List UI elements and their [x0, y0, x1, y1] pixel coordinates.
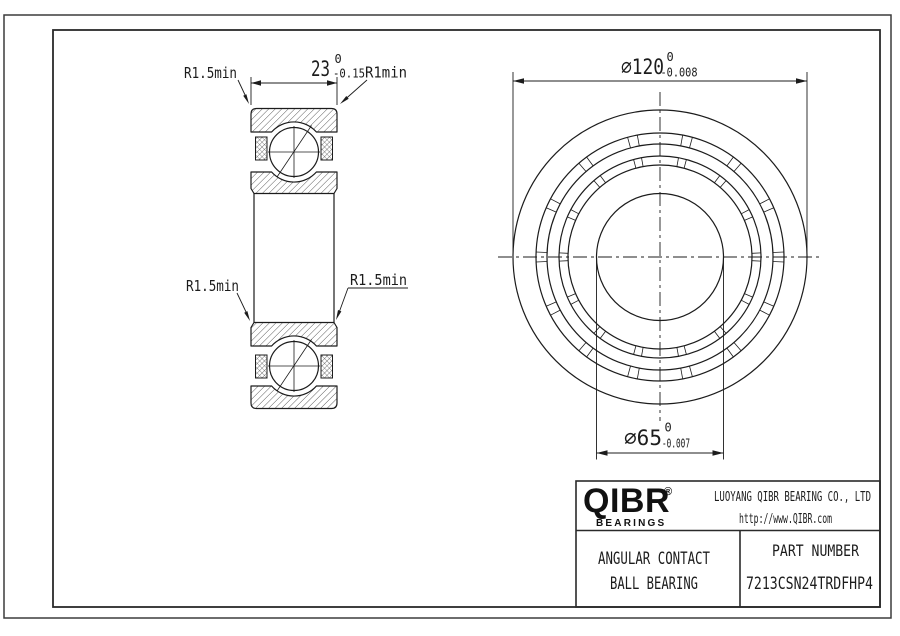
radius-callout-mid-left: R1.5min	[186, 277, 250, 321]
outer-border	[4, 15, 891, 618]
radius-top-left-label: R1.5min	[184, 64, 237, 82]
cage-lower-left	[256, 355, 268, 378]
front-view: ∅120 0 -0.008 ∅65 0 -0.007	[498, 50, 822, 460]
width-tolerance-lower: -0.15	[333, 67, 365, 81]
brand-logo: QIBR ® BEARINGS	[583, 482, 672, 529]
brand-logo-text: QIBR	[583, 482, 670, 520]
cage-upper-left	[256, 137, 268, 160]
part-number-value: 7213CSN24TRDFHP4	[746, 574, 873, 594]
radius-mid-right-label: R1.5min	[350, 271, 407, 289]
product-name-line2: BALL BEARING	[610, 574, 698, 594]
width-dimension-value: 23	[311, 57, 330, 81]
bore-diameter-value: ∅65	[624, 426, 662, 450]
radius-mid-left-label: R1.5min	[186, 277, 239, 295]
company-name: LUOYANG QIBR BEARING CO., LTD	[714, 490, 871, 505]
ball-lower-centerlines	[268, 340, 320, 393]
width-tolerance-upper: 0	[335, 52, 342, 66]
bearing-technical-drawing: 23 0 -0.15 R1.5min R1min R1.5min R1.5min	[0, 0, 900, 636]
outer-diameter-value: ∅120	[621, 55, 664, 79]
bore-diameter-tolerance-upper: 0	[665, 421, 672, 435]
radius-callout-top-left: R1.5min	[184, 64, 249, 104]
part-number-label: PART NUMBER	[772, 541, 859, 560]
radius-top-right-label: R1min	[365, 64, 407, 82]
section-view: 23 0 -0.15 R1.5min R1min R1.5min R1.5min	[184, 52, 408, 409]
title-block: QIBR ® BEARINGS LUOYANG QIBR BEARING CO.…	[576, 481, 880, 607]
ball-upper-centerlines	[268, 126, 320, 179]
drawing-frame	[4, 15, 891, 618]
bearing-drawing-page: 23 0 -0.15 R1.5min R1min R1.5min R1.5min	[0, 0, 900, 636]
radius-callout-mid-right: R1.5min	[336, 271, 408, 320]
brand-tagline: BEARINGS	[596, 518, 666, 529]
company-website: http://www.QIBR.com	[739, 511, 832, 527]
outer-diameter-tolerance-upper: 0	[667, 50, 674, 64]
outer-diameter-tolerance-lower: -0.008	[661, 66, 698, 80]
cage-lower-right	[321, 355, 333, 378]
bore-diameter-tolerance-lower: -0.007	[662, 437, 690, 451]
registered-trademark-icon: ®	[664, 486, 672, 498]
product-name-line1: ANGULAR CONTACT	[598, 549, 710, 569]
cage-upper-right	[321, 137, 333, 160]
